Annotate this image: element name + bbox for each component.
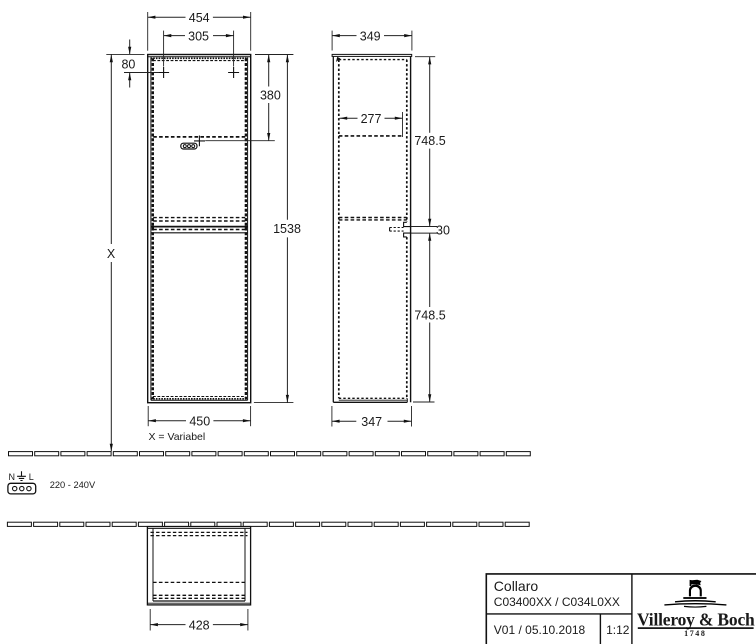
svg-text:1538: 1538: [273, 222, 301, 236]
svg-text:748.5: 748.5: [414, 308, 445, 322]
svg-text:1748: 1748: [684, 629, 706, 638]
svg-text:454: 454: [189, 11, 210, 25]
svg-text:V01 / 05.10.2018: V01 / 05.10.2018: [494, 623, 586, 637]
svg-text:N: N: [9, 472, 16, 482]
svg-text:X: X: [107, 247, 116, 261]
svg-text:L: L: [29, 472, 34, 482]
svg-text:347: 347: [361, 415, 382, 429]
svg-text:349: 349: [360, 29, 381, 43]
svg-text:428: 428: [189, 618, 210, 632]
svg-text:X = Variabel: X = Variabel: [149, 431, 206, 443]
svg-text:277: 277: [361, 112, 382, 126]
svg-text:1:12: 1:12: [606, 623, 630, 637]
svg-text:305: 305: [188, 29, 209, 43]
svg-text:380: 380: [260, 89, 281, 103]
svg-text:Villeroy & Boch: Villeroy & Boch: [637, 610, 755, 630]
svg-text:Collaro: Collaro: [494, 578, 539, 594]
svg-text:450: 450: [189, 415, 210, 429]
svg-text:C03400XX / C034L0XX: C03400XX / C034L0XX: [494, 595, 620, 609]
svg-text:748.5: 748.5: [414, 134, 445, 148]
svg-text:80: 80: [121, 57, 135, 71]
svg-text:220 - 240V: 220 - 240V: [50, 480, 96, 490]
svg-text:30: 30: [436, 224, 450, 238]
